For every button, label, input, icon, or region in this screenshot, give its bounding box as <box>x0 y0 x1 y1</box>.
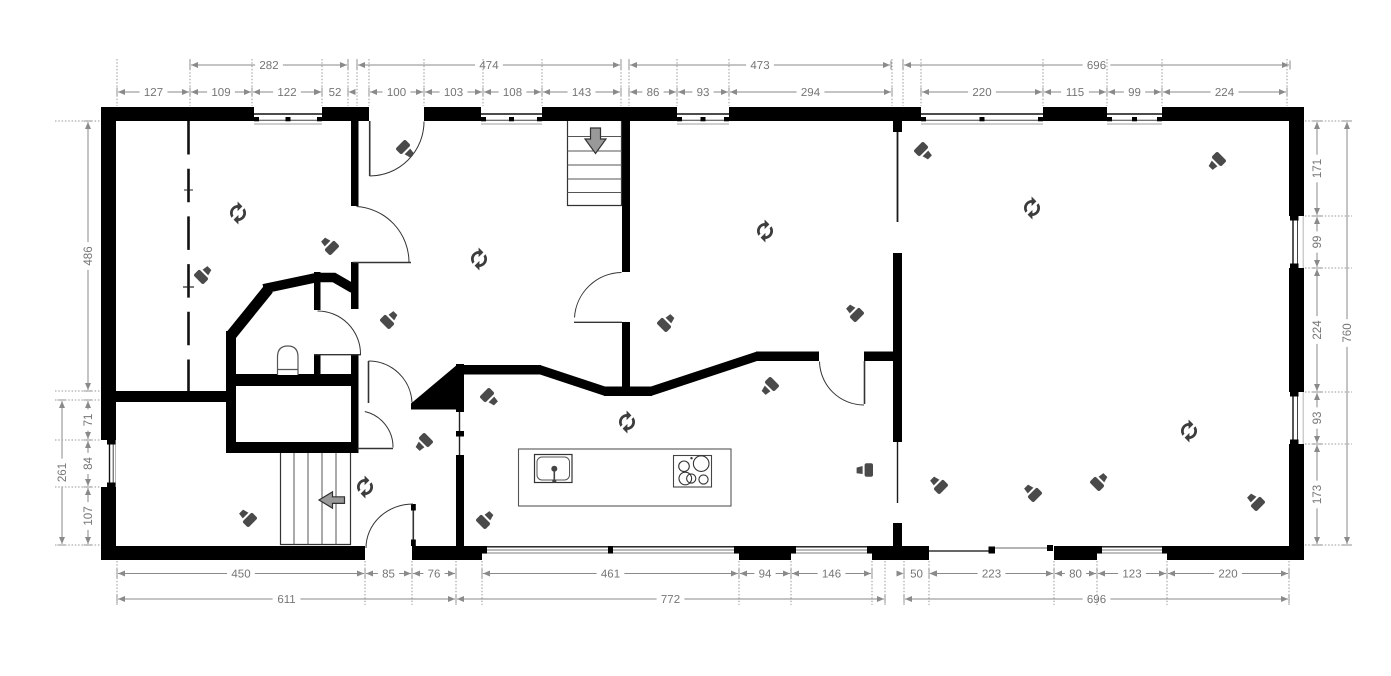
svg-text:146: 146 <box>822 569 841 581</box>
svg-text:473: 473 <box>750 60 769 72</box>
svg-text:94: 94 <box>759 569 772 581</box>
svg-text:224: 224 <box>1312 320 1324 340</box>
svg-text:173: 173 <box>1312 485 1324 504</box>
svg-text:220: 220 <box>1218 569 1237 581</box>
svg-text:224: 224 <box>1215 87 1235 99</box>
svg-text:80: 80 <box>1069 569 1082 581</box>
svg-text:261: 261 <box>57 463 69 482</box>
svg-text:122: 122 <box>277 87 296 99</box>
svg-text:109: 109 <box>211 87 230 99</box>
svg-text:93: 93 <box>1312 412 1324 425</box>
svg-text:115: 115 <box>1066 87 1084 99</box>
svg-text:760: 760 <box>1342 323 1354 342</box>
svg-text:71: 71 <box>83 414 95 427</box>
svg-text:127: 127 <box>144 87 163 99</box>
svg-text:223: 223 <box>982 569 1001 581</box>
svg-text:86: 86 <box>647 87 660 99</box>
svg-text:143: 143 <box>572 87 591 99</box>
svg-text:461: 461 <box>601 569 620 581</box>
svg-text:450: 450 <box>231 569 250 581</box>
svg-text:99: 99 <box>1128 87 1141 99</box>
svg-text:85: 85 <box>382 569 395 581</box>
svg-text:486: 486 <box>83 246 95 265</box>
svg-text:696: 696 <box>1087 60 1106 72</box>
svg-text:474: 474 <box>479 60 499 72</box>
svg-text:76: 76 <box>428 569 441 581</box>
svg-text:52: 52 <box>329 87 342 99</box>
svg-text:50: 50 <box>910 569 923 581</box>
svg-text:171: 171 <box>1312 159 1324 178</box>
svg-text:282: 282 <box>259 60 278 72</box>
svg-text:696: 696 <box>1087 594 1106 606</box>
svg-text:84: 84 <box>83 457 95 470</box>
svg-text:294: 294 <box>801 87 821 99</box>
svg-text:107: 107 <box>83 506 95 525</box>
svg-text:611: 611 <box>277 594 295 606</box>
svg-text:220: 220 <box>972 87 991 99</box>
svg-text:100: 100 <box>387 87 406 99</box>
svg-text:103: 103 <box>444 87 463 99</box>
svg-text:123: 123 <box>1122 569 1141 581</box>
svg-text:108: 108 <box>503 87 522 99</box>
svg-text:772: 772 <box>661 594 680 606</box>
svg-text:93: 93 <box>697 87 710 99</box>
svg-text:99: 99 <box>1312 236 1324 249</box>
